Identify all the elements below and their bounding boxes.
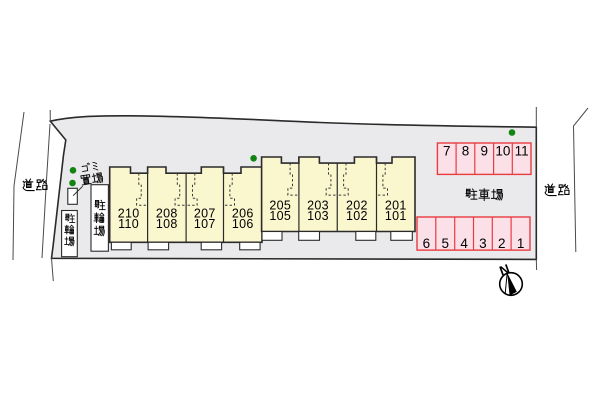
svg-text:6: 6 [423, 236, 431, 251]
svg-text:1: 1 [517, 236, 525, 251]
svg-text:101: 101 [385, 209, 407, 223]
svg-text:2: 2 [498, 236, 506, 251]
svg-text:11: 11 [515, 144, 529, 159]
svg-text:106: 106 [232, 217, 254, 231]
svg-text:3: 3 [479, 236, 487, 251]
svg-text:110: 110 [118, 217, 139, 231]
svg-text:N: N [497, 261, 511, 278]
svg-text:5: 5 [441, 236, 449, 251]
svg-text:102: 102 [346, 209, 368, 223]
svg-text:9: 9 [480, 144, 488, 159]
svg-text:8: 8 [462, 144, 470, 159]
svg-text:108: 108 [156, 217, 178, 231]
svg-text:4: 4 [460, 236, 468, 251]
svg-text:103: 103 [307, 209, 329, 223]
svg-text:10: 10 [495, 144, 510, 159]
svg-text:7: 7 [443, 144, 451, 159]
svg-text:105: 105 [269, 209, 291, 223]
svg-text:107: 107 [194, 217, 216, 231]
